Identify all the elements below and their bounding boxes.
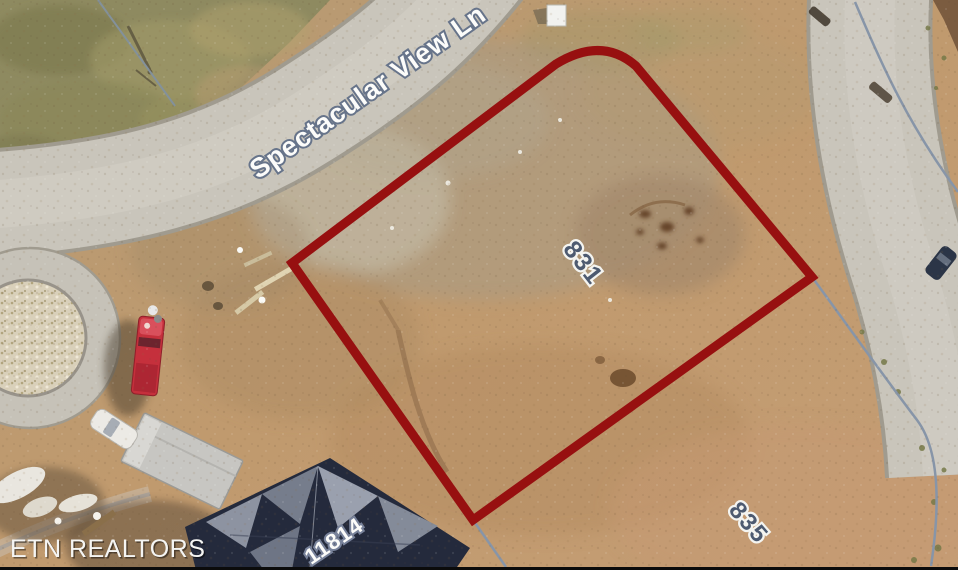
aerial-map-canvas: Spectacular View Ln 831 835 11814 ETN RE… [0, 0, 958, 570]
grain-texture [0, 0, 958, 570]
aerial-map-image: Spectacular View Ln 831 835 11814 ETN RE… [0, 0, 958, 570]
watermark: ETN REALTORS [10, 535, 205, 563]
